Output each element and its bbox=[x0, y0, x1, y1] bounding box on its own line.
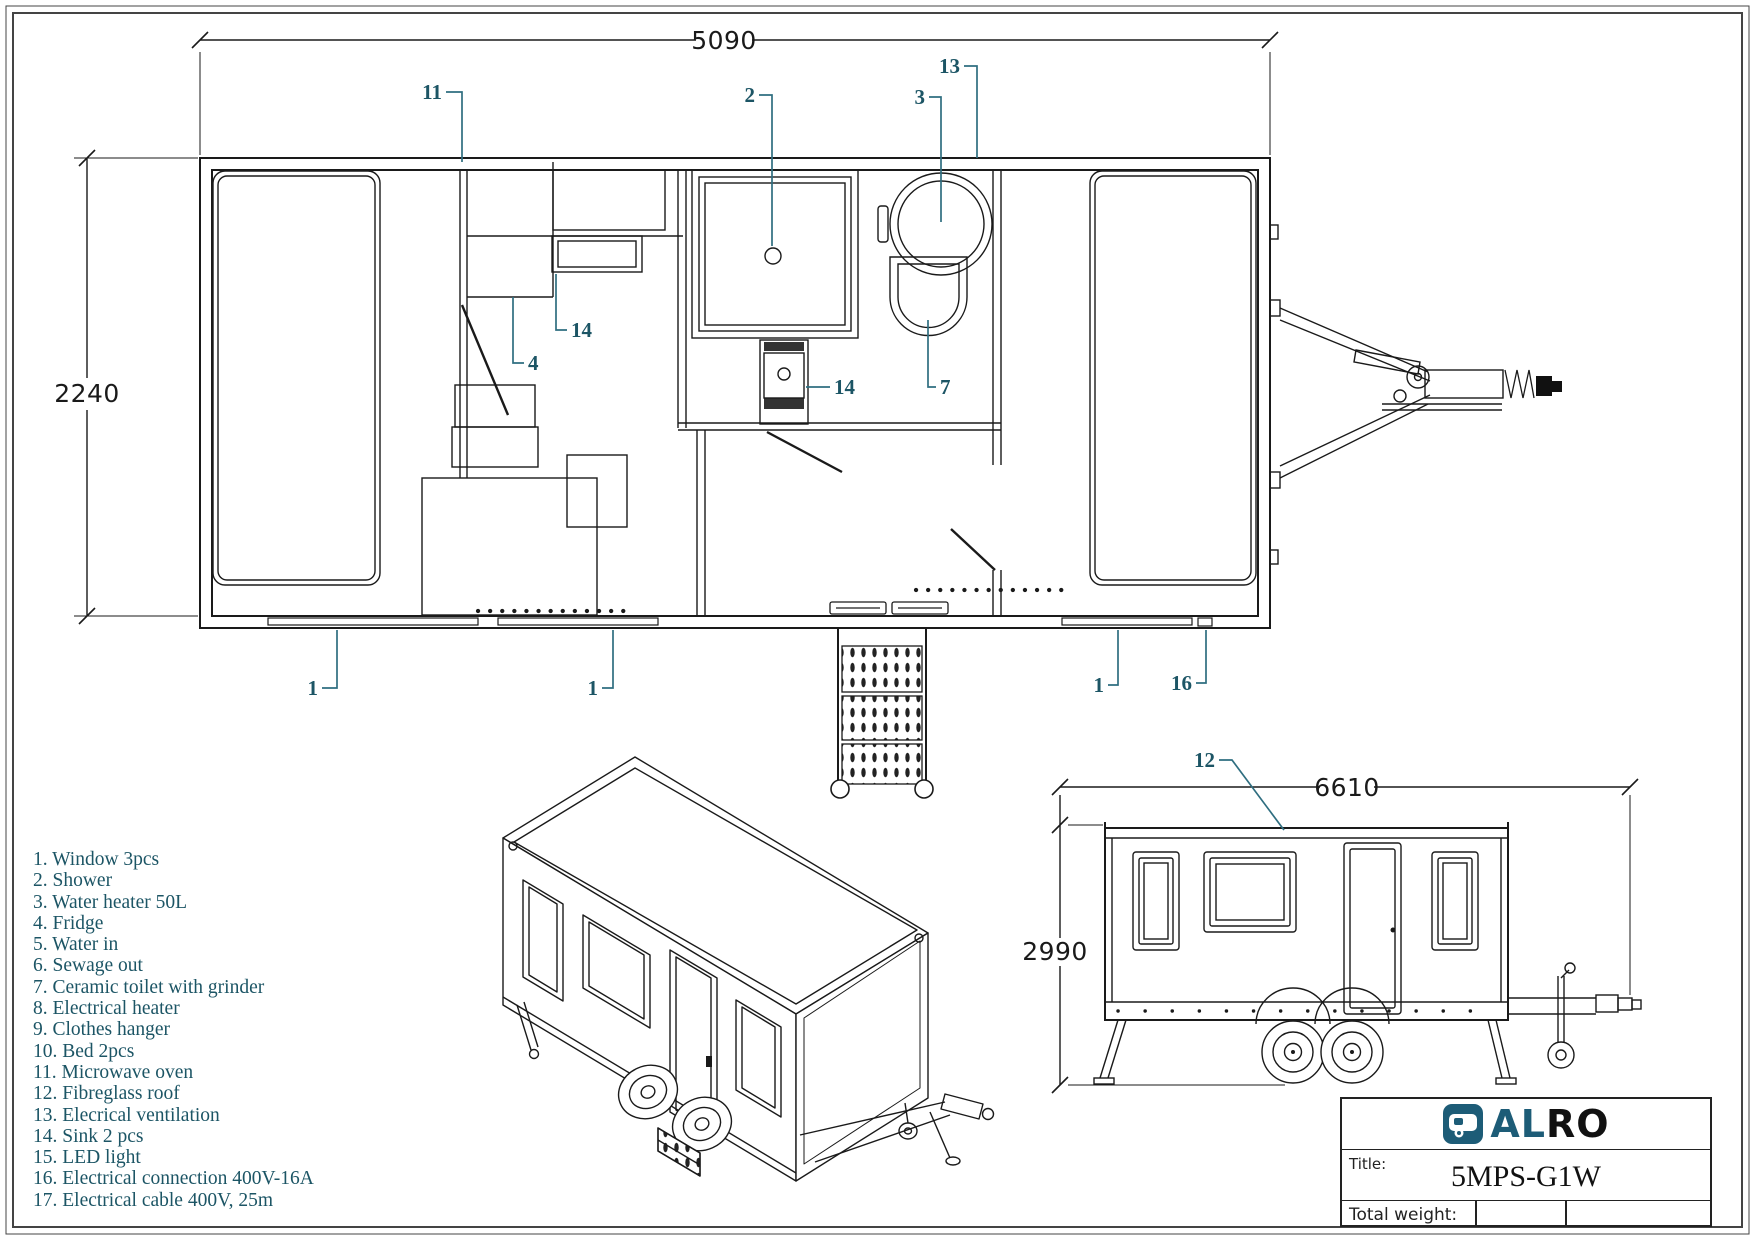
plan-callouts: 11 2 3 13 14 4 bbox=[308, 54, 1207, 700]
svg-text:3: 3 bbox=[915, 85, 926, 109]
iso-view bbox=[503, 757, 994, 1181]
alro-caravan-logo-icon bbox=[1442, 1103, 1484, 1145]
alro-logo-text: ALRO bbox=[1490, 1105, 1609, 1143]
svg-text:14: 14 bbox=[571, 318, 593, 342]
callout-window-right: 1 bbox=[1094, 630, 1119, 697]
plan-bathroom bbox=[678, 170, 1072, 616]
parts-list-item: 2. Shower bbox=[33, 870, 363, 891]
plan-bed-right bbox=[1090, 171, 1256, 585]
plan-shower bbox=[692, 170, 858, 338]
parts-list-item: 13. Elecrical ventilation bbox=[33, 1105, 363, 1126]
callout-toilet: 7 bbox=[928, 320, 951, 399]
svg-text:14: 14 bbox=[834, 375, 856, 399]
plan-width-value: 5090 bbox=[691, 26, 757, 55]
parts-list-item: 12. Fibreglass roof bbox=[33, 1083, 363, 1104]
callout-microwave: 11 bbox=[422, 80, 462, 162]
weight-cell-divider bbox=[1565, 1201, 1567, 1227]
plan-bed-left bbox=[213, 171, 380, 585]
plan-view: 5090 2240 bbox=[54, 26, 1562, 798]
plan-water-heater bbox=[878, 173, 992, 275]
side-window-wide bbox=[1204, 852, 1296, 932]
title-block-weight-row: Total weight: bbox=[1342, 1201, 1710, 1227]
parts-list-item: 8. Electrical heater bbox=[33, 998, 363, 1019]
callout-window-left: 1 bbox=[308, 630, 338, 700]
callout-fridge: 4 bbox=[513, 297, 539, 375]
logo-text-al: AL bbox=[1490, 1105, 1546, 1143]
svg-text:1: 1 bbox=[1094, 673, 1105, 697]
plan-entry-steps bbox=[830, 602, 948, 798]
callout-water-heater: 3 bbox=[915, 85, 942, 222]
callout-shower: 2 bbox=[745, 83, 773, 246]
title-block: ALRO Title: 5MPS-G1W Total weight: bbox=[1340, 1097, 1712, 1227]
weight-cell-divider bbox=[1475, 1201, 1477, 1227]
plan-kitchen bbox=[422, 162, 683, 615]
svg-text:12: 12 bbox=[1194, 748, 1215, 772]
drawing-title: 5MPS-G1W bbox=[1342, 1160, 1710, 1194]
parts-list-item: 11. Microwave oven bbox=[33, 1062, 363, 1083]
drawing-sheet: 5090 2240 bbox=[0, 0, 1755, 1240]
plan-sink-bath bbox=[760, 340, 808, 424]
side-window-right bbox=[1432, 852, 1478, 950]
parts-list-item: 9. Clothes hanger bbox=[33, 1019, 363, 1040]
plan-height-value: 2240 bbox=[54, 379, 120, 408]
callout-connection: 16 bbox=[1171, 630, 1206, 695]
svg-text:11: 11 bbox=[422, 80, 442, 104]
parts-list-item: 7. Ceramic toilet with grinder bbox=[33, 977, 363, 998]
parts-list: 1. Window 3pcs 2. Shower 3. Water heater… bbox=[33, 849, 363, 1211]
plan-dimension-height: 2240 bbox=[54, 150, 198, 624]
svg-text:1: 1 bbox=[588, 676, 599, 700]
plan-hitch bbox=[1270, 225, 1562, 564]
side-dimension-length: 6610 bbox=[1052, 773, 1638, 995]
plan-walls bbox=[200, 158, 1270, 628]
callout-window-mid: 1 bbox=[588, 630, 614, 700]
plan-electrical-connection bbox=[1198, 618, 1212, 626]
svg-text:4: 4 bbox=[528, 351, 539, 375]
parts-list-item: 16. Electrical connection 400V-16A bbox=[33, 1168, 363, 1189]
side-window-left bbox=[1133, 852, 1179, 950]
svg-text:13: 13 bbox=[939, 54, 960, 78]
svg-text:2: 2 bbox=[745, 83, 756, 107]
parts-list-item: 4. Fridge bbox=[33, 913, 363, 934]
svg-text:1: 1 bbox=[308, 676, 319, 700]
callout-sink-bath: 14 bbox=[806, 375, 856, 399]
side-drawbar bbox=[1508, 963, 1641, 1068]
parts-list-item: 3. Water heater 50L bbox=[33, 892, 363, 913]
parts-list-item: 15. LED light bbox=[33, 1147, 363, 1168]
parts-list-item: 6. Sewage out bbox=[33, 955, 363, 976]
title-block-logo-row: ALRO bbox=[1342, 1099, 1710, 1150]
parts-list-item: 17. Electrical cable 400V, 25m bbox=[33, 1190, 363, 1211]
parts-list-item: 1. Window 3pcs bbox=[33, 849, 363, 870]
svg-text:7: 7 bbox=[940, 375, 951, 399]
svg-text:16: 16 bbox=[1171, 671, 1192, 695]
plan-windows bbox=[268, 617, 1212, 626]
total-weight-label: Total weight: bbox=[1349, 1205, 1457, 1225]
side-view: 6610 2990 bbox=[1022, 748, 1641, 1093]
callout-ventilation: 13 bbox=[939, 54, 977, 158]
title-block-title-row: Title: 5MPS-G1W bbox=[1342, 1150, 1710, 1201]
parts-list-item: 14. Sink 2 pcs bbox=[33, 1126, 363, 1147]
plan-dimension-width: 5090 bbox=[192, 26, 1278, 155]
logo-text-ro: RO bbox=[1546, 1105, 1610, 1143]
parts-list-item: 5. Water in bbox=[33, 934, 363, 955]
parts-list-item: 10. Bed 2pcs bbox=[33, 1041, 363, 1062]
side-height-value: 2990 bbox=[1022, 937, 1088, 966]
callout-roof: 12 bbox=[1194, 748, 1284, 830]
callout-sink-kitchen: 14 bbox=[556, 274, 593, 342]
side-length-value: 6610 bbox=[1314, 773, 1380, 802]
